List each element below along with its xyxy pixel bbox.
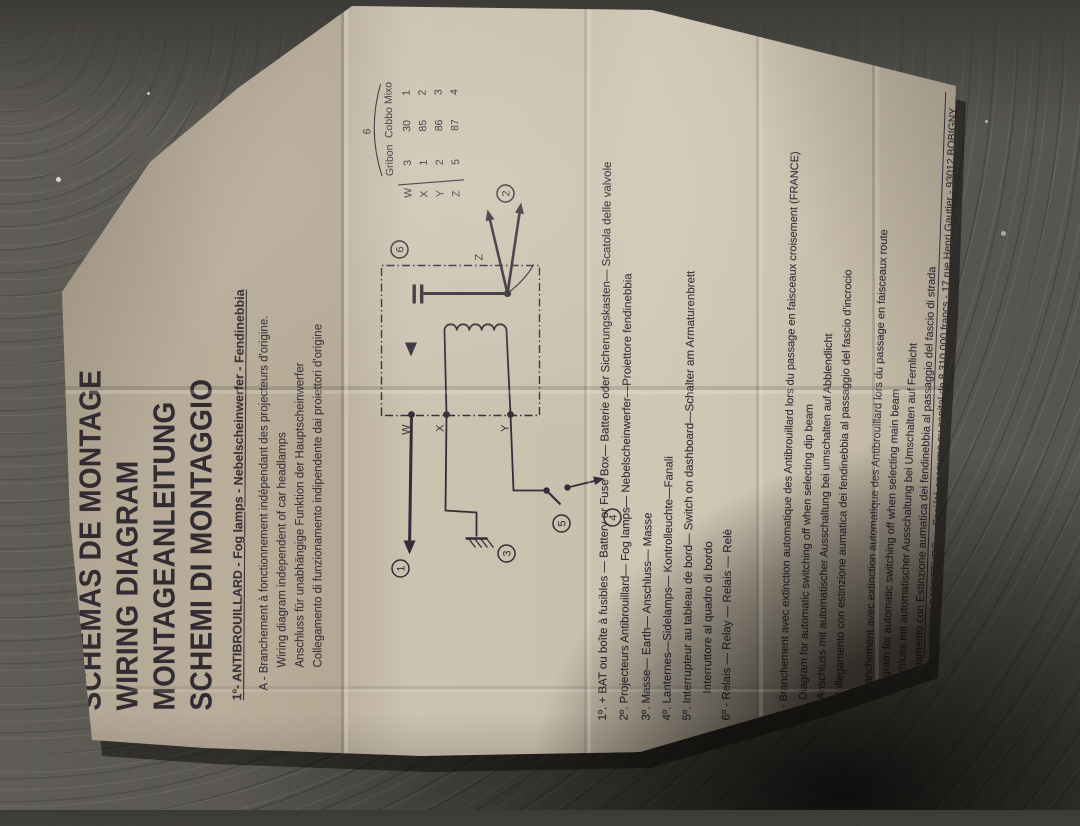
table-cell: 2 <box>417 90 429 96</box>
node-6-relay: 6 <box>391 241 408 258</box>
node-5-number: 5 <box>557 520 569 526</box>
fog-lamp-wire-2 <box>508 207 521 294</box>
table-cell: 87 <box>449 119 461 131</box>
section-b-line-en: Diagram for automatic switching off when… <box>798 404 816 700</box>
legend-item-2: 2º. Projecteurs Antibrouillard— Fog lamp… <box>619 273 636 720</box>
table-cell: 3 <box>402 160 414 166</box>
switch-lever <box>547 491 561 505</box>
node-6-number: 6 <box>395 246 407 252</box>
instruction-sheet-paper: SCHEMAS DE MONTAGE WIRING DIAGRAM MONTAG… <box>0 0 1080 810</box>
title-english: WIRING DIAGRAM <box>111 433 145 711</box>
terminal-label-z: Z <box>474 254 486 261</box>
switch-wire <box>511 415 545 491</box>
sidelamp-wire <box>568 481 597 488</box>
coil-wire-y <box>507 331 511 415</box>
section-b-line-it: Collegamento con estinzione aumatica dei… <box>834 269 855 699</box>
table-cell: 3 <box>433 89 445 95</box>
floor-specks <box>0 0 3 3</box>
terminal-dot-w <box>408 411 415 418</box>
table-col-header-3: Mixo <box>382 82 394 104</box>
relay-contact-bar-2 <box>420 285 423 304</box>
section-1-header: 1º- ANTIBROUILLARD - Fog lamps - Nebelsc… <box>231 289 248 700</box>
current-direction-arrow <box>405 343 417 357</box>
table-cell: 1 <box>401 90 413 96</box>
table-cell: 2 <box>434 159 446 165</box>
section-a-line-en: Wiring diagram independent of car headla… <box>277 432 290 667</box>
table-cell: 86 <box>433 119 445 131</box>
table-divider-rule <box>398 180 464 185</box>
table-row-label: Z <box>450 190 462 197</box>
legend-item-4: 4º. Lanternes—Sidelamps— Kontrolleuchte—… <box>661 456 676 720</box>
title-italian-text: SCHEMI DI MONTAGGIO <box>185 379 219 711</box>
node-3-earth: 3 <box>498 545 515 562</box>
node-3-number: 3 <box>502 550 514 556</box>
title-french: SCHEMAS DE MONTAGE <box>74 332 108 711</box>
section-a-line-de: Anschluss für unabhängige Funktion der H… <box>295 363 308 668</box>
node-1-battery: 1 <box>392 560 409 577</box>
earth-symbol-hatches <box>469 539 494 548</box>
legend-item-5-cont: Interruttore al quadro di bordo <box>702 541 716 693</box>
node-1-number: 1 <box>396 565 408 571</box>
fog-lamp-arrowhead-2 <box>515 203 524 215</box>
table-cell: 85 <box>417 120 429 132</box>
table-cell: 30 <box>401 120 413 132</box>
sheet-content-rotated: SCHEMAS DE MONTAGE WIRING DIAGRAM MONTAG… <box>72 31 952 746</box>
legend-item-3: 3º. Masse— Earth— Anschluss— Masse <box>641 512 655 720</box>
fog-lamp-arrowhead-1 <box>486 210 495 222</box>
title-german: MONTAGEANLEITUNG <box>148 367 182 710</box>
earth-wire <box>446 415 477 537</box>
node-2-number: 2 <box>501 190 513 196</box>
title-english-text: WIRING DIAGRAM <box>111 461 145 711</box>
node-2-fog-lamps: 2 <box>497 185 514 202</box>
terminal-label-w: W <box>401 424 413 435</box>
table-brace <box>373 84 382 176</box>
fog-lamp-wire-1 <box>489 214 508 294</box>
table-cell: 5 <box>450 159 462 165</box>
title-italian: SCHEMI DI MONTAGGIO <box>185 342 219 711</box>
table-row-label: X <box>418 190 430 197</box>
terminal-dot-y <box>507 411 514 418</box>
terminal-label-y: Y <box>500 424 512 432</box>
relay-contact-bar-1 <box>413 285 416 304</box>
legend-item-6: 6º - Relais — Relay — Relais — Relè <box>721 529 735 721</box>
title-french-text: SCHEMAS DE MONTAGE <box>74 370 108 711</box>
table-row-label: Y <box>434 190 446 197</box>
table-cell: 1 <box>418 160 430 166</box>
table-cell: 4 <box>449 89 461 95</box>
table-col-header-2: Cobbo <box>383 107 396 138</box>
terminal-dot-x <box>443 411 450 418</box>
node-5-switch: 5 <box>553 515 570 532</box>
table-row-label: W <box>402 188 414 198</box>
legend-item-5: 5º. Interrupteur au tableau de bord— Swi… <box>682 271 699 721</box>
relay-terminal-table: 6 Gribon Cobbo Mixo W 3 30 1 X 1 85 2 Y … <box>362 66 485 218</box>
section-a-line-it: Collegamento di funzionamento indipenden… <box>313 324 326 668</box>
battery-arrowhead <box>404 541 416 555</box>
coil-wire-x <box>445 331 447 415</box>
relay-coil <box>445 324 507 330</box>
relay-outline-box <box>382 266 540 416</box>
section-a-line-fr: A - Branchement à fonctionnement indépen… <box>259 316 272 691</box>
section-b-line-de: Anschluss mit automatischer Ausschaltung… <box>816 333 836 699</box>
terminal-label-x: X <box>435 424 447 432</box>
table-col-header-1: Gribon <box>384 144 397 176</box>
title-german-text: MONTAGEANLEITUNG <box>148 401 182 710</box>
